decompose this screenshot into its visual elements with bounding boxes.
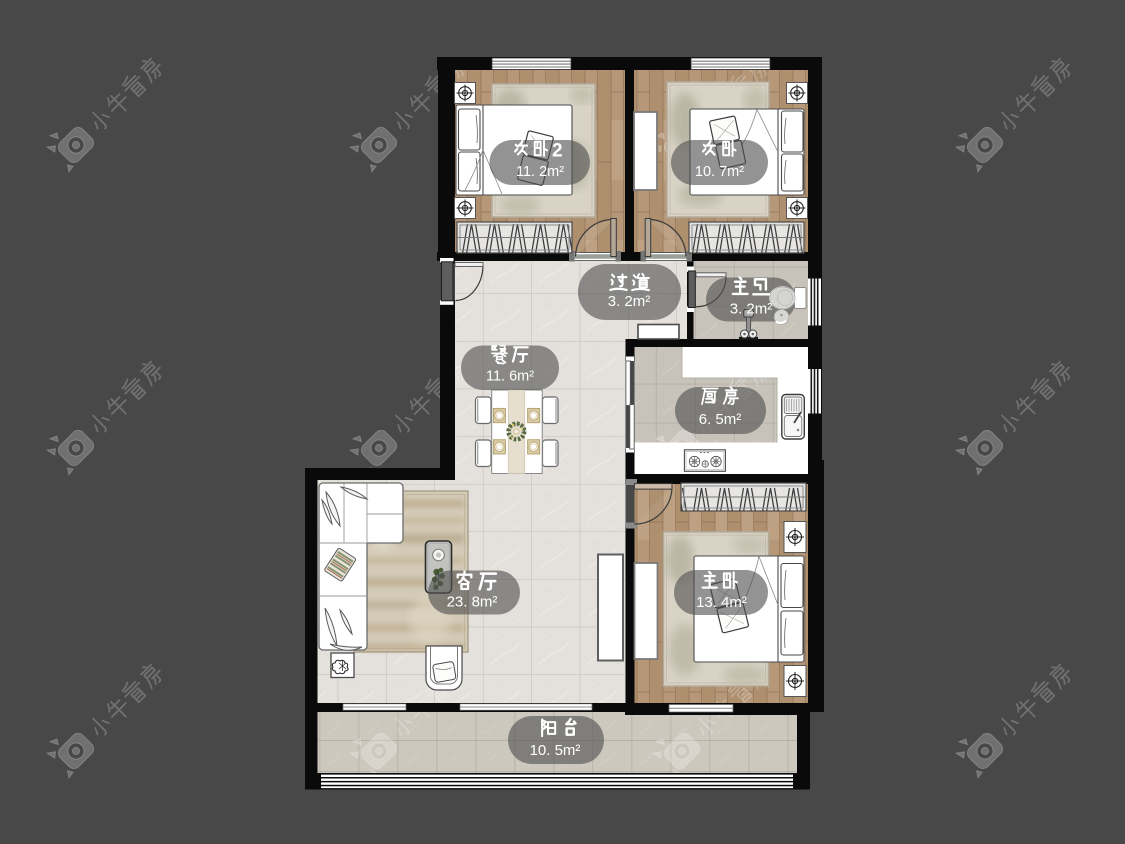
svg-text:13. 4m²: 13. 4m² (696, 594, 747, 611)
svg-text:3. 2m²: 3. 2m² (608, 293, 651, 310)
svg-text:6. 5m²: 6. 5m² (699, 411, 742, 428)
svg-text:3. 2m²: 3. 2m² (730, 301, 773, 318)
svg-text:11. 2m²: 11. 2m² (516, 164, 564, 180)
svg-text:2: 2 (552, 141, 563, 162)
svg-text:10. 5m²: 10. 5m² (530, 742, 581, 759)
svg-text:23. 8m²: 23. 8m² (447, 594, 498, 611)
svg-text:11. 6m²: 11. 6m² (486, 369, 534, 385)
svg-text:10. 7m²: 10. 7m² (695, 164, 744, 180)
